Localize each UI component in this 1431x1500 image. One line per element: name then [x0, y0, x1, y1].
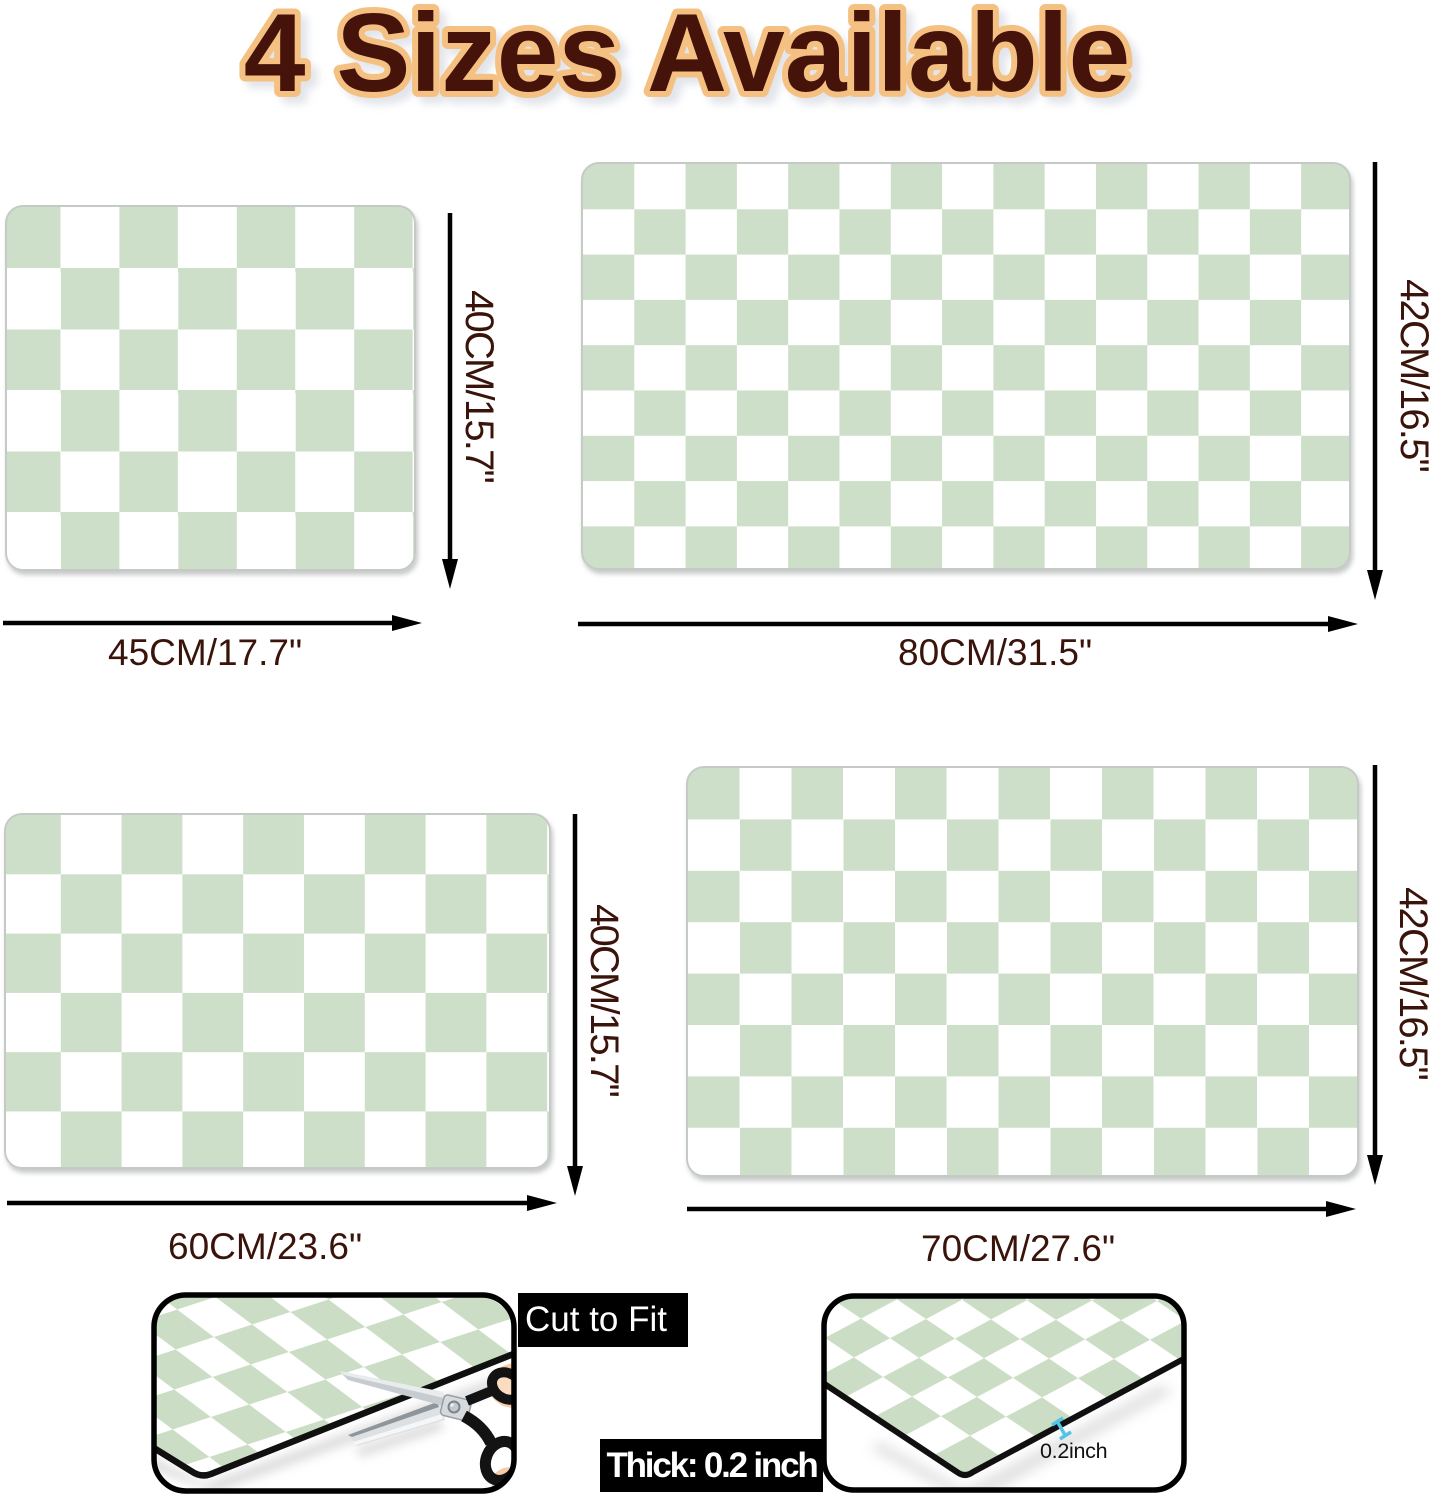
svg-text:4 Sizes Available: 4 Sizes Available: [244, 0, 1130, 115]
svg-text:0.2inch: 0.2inch: [1040, 1439, 1107, 1463]
